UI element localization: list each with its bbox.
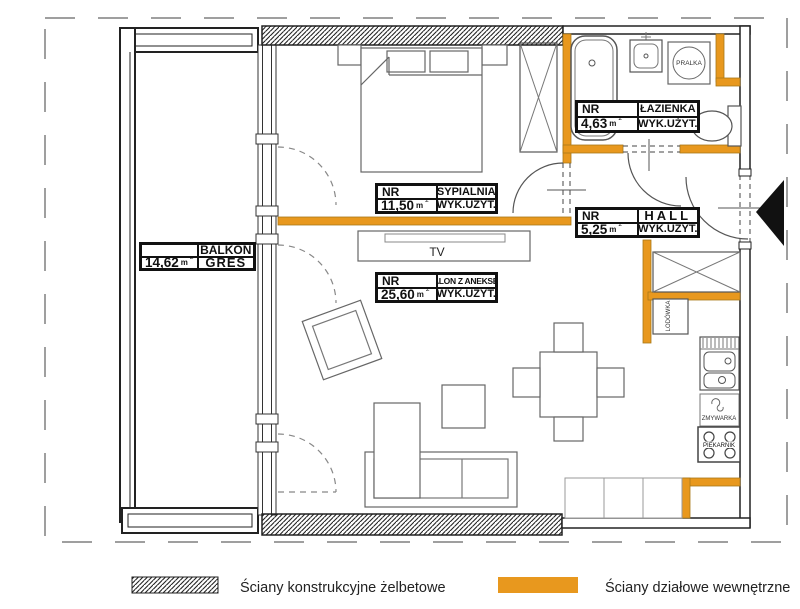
partition-washer-niche-h	[716, 78, 740, 86]
bathroom-area: 4,63m2	[577, 117, 638, 132]
partition-bathroom-south-left	[563, 145, 623, 153]
legend-structural-swatch	[132, 577, 218, 593]
legend: Ściany konstrukcyjne żelbetowe Ściany dz…	[132, 577, 790, 596]
fridge-label: LODÓWKA	[665, 301, 672, 332]
floor-plan-drawing: PRALKA	[0, 0, 800, 609]
chair-left	[513, 368, 540, 397]
entrance-arrow	[756, 180, 784, 246]
bathroom-label: NR ŁAZIENKA 4,63m2 WYK.UŻYT.	[575, 100, 700, 133]
hall-name: HALL	[638, 209, 699, 223]
balcony-door-swing-salon-upper	[278, 245, 336, 303]
living-room-usage: WYK.UŻYT.	[437, 288, 497, 302]
bedroom-area: 11,50m2	[377, 199, 437, 213]
partition-bathroom-west	[563, 34, 571, 163]
side-table	[442, 385, 485, 428]
pillow-left	[387, 51, 425, 72]
partition-washer-niche-v	[716, 34, 724, 82]
kitchen-counter	[565, 478, 682, 518]
legend-structural-label: Ściany konstrukcyjne żelbetowe	[240, 578, 446, 596]
balcony-door-swing-salon-lower	[278, 434, 336, 492]
dishwasher-label: ZMYWARKA	[702, 416, 736, 422]
hall-label: NR HALL 5,25m2 WYK.UŻYT.	[575, 207, 700, 238]
partition-hall-west	[643, 240, 651, 343]
partition-kitchen-counter-h	[682, 478, 740, 486]
balcony-door-swing-bedroom	[278, 147, 336, 205]
hall-usage: WYK.UŻYT.	[638, 223, 699, 237]
oven-label: PIEKARNIK	[703, 443, 735, 449]
pillow-right	[430, 51, 468, 72]
bathroom-name: ŁAZIENKA	[638, 102, 699, 117]
bathroom-door-swing	[628, 153, 681, 206]
bathroom-nr: NR	[577, 102, 638, 117]
nightstand-left	[338, 45, 361, 65]
partition-kitchen-counter-v	[682, 478, 690, 518]
hall-closet	[653, 252, 740, 292]
balcony-name: BALKON	[198, 244, 255, 257]
living-room-name: SALON Z ANEKSEM	[437, 274, 497, 288]
bedroom-name: SYPIALNIA	[437, 185, 497, 199]
bedroom-nr: NR	[377, 185, 437, 199]
structural-wall-bottom	[262, 514, 562, 535]
balcony-empty-cell	[141, 244, 198, 257]
tv-label: TV	[429, 245, 444, 259]
washer-label: PRALKA	[676, 60, 702, 67]
chair-top	[554, 323, 583, 352]
chair-bottom	[554, 417, 583, 441]
chaise	[374, 403, 420, 498]
floor-plan: PRALKA	[0, 0, 800, 609]
window-wall	[256, 45, 278, 515]
partition-bedroom-south	[278, 217, 571, 225]
bedroom-label: NR SYPIALNIA 11,50m2 WYK.UŻYT.	[375, 183, 498, 214]
hall-nr: NR	[577, 209, 638, 223]
legend-partition-label: Ściany działowe wewnętrzne	[605, 578, 790, 596]
bedroom-door-swing	[513, 163, 563, 213]
bathroom-sink	[630, 40, 662, 72]
balcony-label: BALKON 14,62m2 GRES	[139, 242, 256, 271]
living-room-nr: NR	[377, 274, 437, 288]
living-room-label: NR SALON Z ANEKSEM 25,60m2 WYK.UŻYT.	[375, 272, 498, 303]
bathroom-usage: WYK.UŻYT.	[638, 117, 699, 132]
structural-wall-top	[262, 26, 563, 45]
nightstand-right	[482, 45, 507, 65]
bedroom-usage: WYK.UŻYT.	[437, 199, 497, 213]
bedroom-furniture	[338, 43, 557, 172]
living-room-area: 25,60m2	[377, 288, 437, 302]
hall-area: 5,25m2	[577, 223, 638, 237]
dining-table	[540, 352, 597, 417]
chair-right	[597, 368, 624, 397]
balcony-walls	[120, 28, 258, 533]
balcony-floor: GRES	[198, 257, 255, 270]
balcony-area: 14,62m2	[141, 257, 198, 270]
legend-partition-swatch	[498, 577, 578, 593]
armchair	[302, 300, 381, 379]
